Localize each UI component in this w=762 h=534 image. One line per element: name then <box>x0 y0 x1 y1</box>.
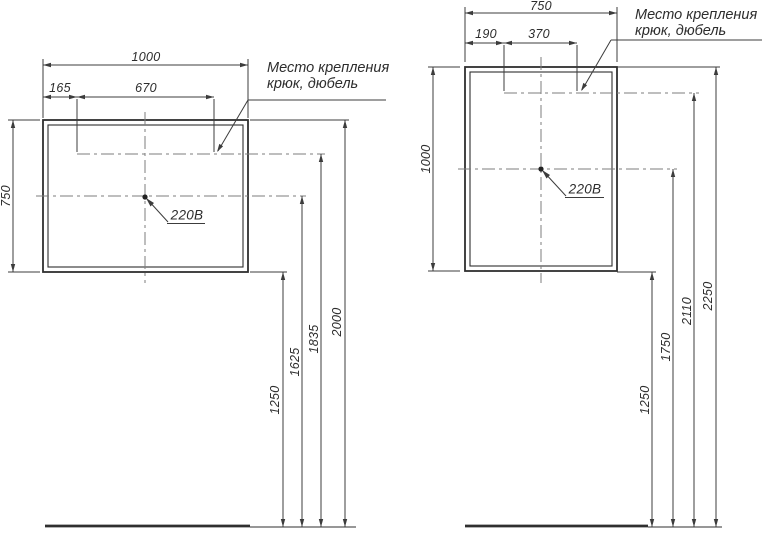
right-outlet-height-dim: 1750 <box>659 332 673 361</box>
right-hook-spacing-dim: 370 <box>528 27 550 41</box>
right-hooks-height-dim: 2110 <box>680 297 694 325</box>
left-dimension-lines <box>13 65 345 527</box>
right-outlet-dot <box>538 166 543 171</box>
right-floor-line <box>465 526 722 527</box>
right-mirror-height-dim: 1000 <box>419 144 433 173</box>
left-mount-note-line1: Место крепления <box>267 61 389 77</box>
left-arrowheads <box>11 63 347 527</box>
left-hook-offset-dim: 165 <box>49 81 71 95</box>
right-top-height-dim: 2250 <box>701 281 715 310</box>
left-mirror-width-dim: 1000 <box>131 50 160 64</box>
right-bottom-height-dim: 1250 <box>638 385 652 414</box>
right-extension-lines <box>428 7 720 272</box>
right-leader-lines <box>543 40 762 198</box>
right-mirror-width-dim: 750 <box>530 0 552 13</box>
right-dimension-lines <box>433 13 716 527</box>
left-bottom-height-dim: 1250 <box>268 385 282 414</box>
left-mirror-height-dim: 750 <box>0 185 13 207</box>
left-hook-spacing-dim: 670 <box>135 81 157 95</box>
right-mount-note: Место крепления крюк, дюбель <box>635 8 757 39</box>
left-outlet-voltage-label: 220В <box>171 208 204 223</box>
left-top-height-dim: 2000 <box>330 307 344 336</box>
left-outlet-dot <box>142 194 147 199</box>
right-outlet-voltage-label: 220В <box>569 182 602 197</box>
right-mount-note-line2: крюк, дюбель <box>635 24 757 40</box>
left-mount-note: Место крепления крюк, дюбель <box>267 61 389 92</box>
left-mount-note-line2: крюк, дюбель <box>267 77 389 93</box>
right-mount-note-line1: Место крепления <box>635 8 757 24</box>
right-centerlines <box>458 57 699 283</box>
right-hook-offset-dim: 190 <box>475 27 497 41</box>
right-arrowheads <box>431 11 718 527</box>
left-hooks-height-dim: 1835 <box>307 324 321 353</box>
left-centerlines <box>36 112 325 283</box>
left-outlet-height-dim: 1625 <box>288 347 302 376</box>
left-leader-lines <box>147 100 386 224</box>
left-floor-line <box>45 526 356 527</box>
mirror-mounting-diagram: 1000 165 670 750 1250 1625 1835 2000 220… <box>0 0 762 534</box>
